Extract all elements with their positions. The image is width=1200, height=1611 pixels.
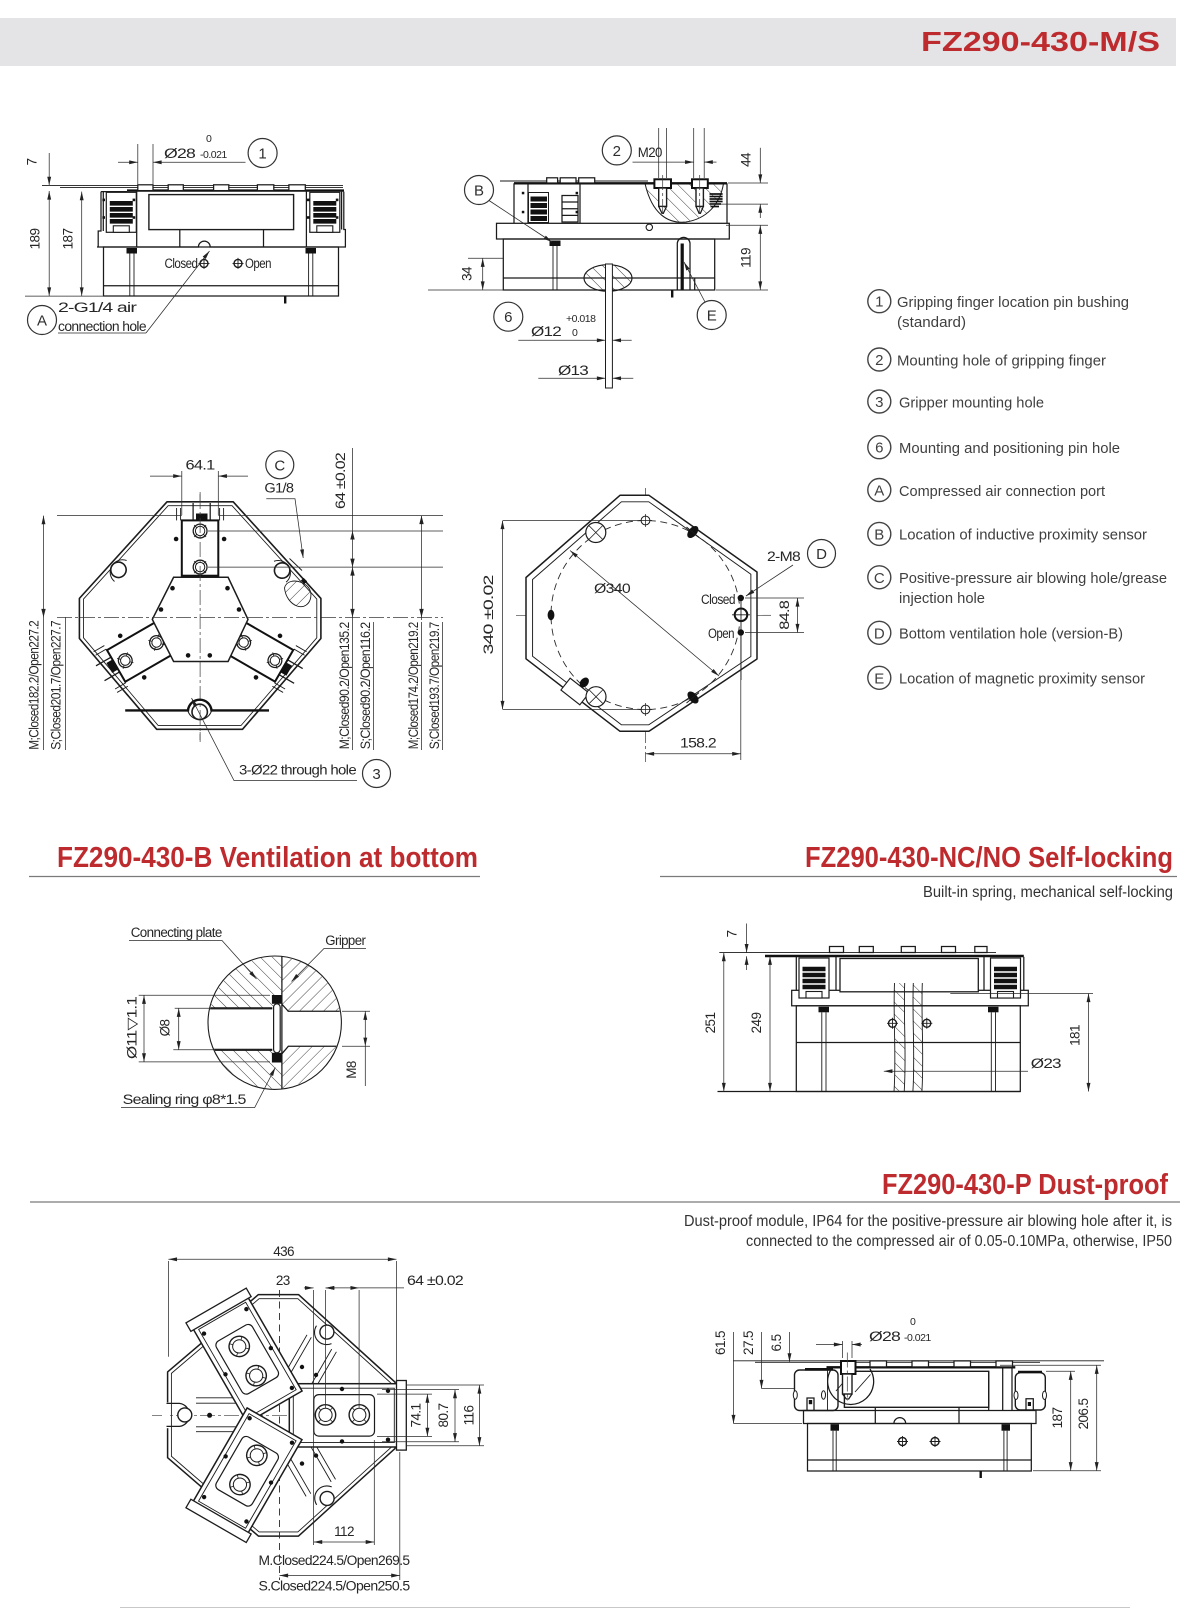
svg-text:23: 23 <box>276 1273 290 1288</box>
svg-text:FZ290-430-NC/NO Self-locking: FZ290-430-NC/NO Self-locking <box>805 842 1173 874</box>
svg-text:64 ±0.02: 64 ±0.02 <box>333 453 348 509</box>
svg-text:M.Closed224.5/Open269.5: M.Closed224.5/Open269.5 <box>259 1553 410 1568</box>
svg-text:206.5: 206.5 <box>1076 1399 1091 1430</box>
svg-text:251: 251 <box>703 1013 718 1034</box>
svg-text:Ø340: Ø340 <box>594 581 630 596</box>
svg-text:Closed: Closed <box>165 256 198 271</box>
svg-text:C: C <box>274 457 285 474</box>
svg-text:connection hole: connection hole <box>58 319 146 334</box>
svg-text:E: E <box>874 670 884 687</box>
svg-text:44: 44 <box>739 152 754 167</box>
svg-text:Sealing ring φ8*1.5: Sealing ring φ8*1.5 <box>123 1092 246 1107</box>
svg-text:G1/8: G1/8 <box>264 481 293 496</box>
svg-text:Ø28: Ø28 <box>164 146 195 161</box>
svg-text:connected to the compressed ai: connected to the compressed air of 0.05-… <box>746 1233 1172 1250</box>
svg-text:189: 189 <box>28 229 43 250</box>
svg-text:2: 2 <box>875 352 883 369</box>
svg-text:2-M8: 2-M8 <box>767 549 800 564</box>
svg-text:0: 0 <box>910 1316 916 1328</box>
svg-text:Open: Open <box>708 626 734 641</box>
svg-text:C: C <box>874 570 885 587</box>
svg-text:B: B <box>474 183 484 200</box>
svg-text:S;Closed201.7/Open227.7: S;Closed201.7/Open227.7 <box>49 621 64 750</box>
svg-text:Dust-proof module, IP64 for th: Dust-proof module, IP64 for the positive… <box>684 1213 1172 1230</box>
svg-text:3: 3 <box>875 394 883 411</box>
svg-text:M20: M20 <box>638 145 662 160</box>
svg-text:6.5: 6.5 <box>769 1334 784 1351</box>
svg-text:2: 2 <box>613 143 621 160</box>
svg-text:6: 6 <box>875 440 883 457</box>
svg-text:FZ290-430-P Dust-proof: FZ290-430-P Dust-proof <box>882 1169 1168 1201</box>
svg-text:84.8: 84.8 <box>777 601 792 630</box>
svg-text:Connecting plate: Connecting plate <box>131 925 222 940</box>
svg-text:Mounting and positioning pin h: Mounting and positioning pin hole <box>899 440 1120 457</box>
svg-text:27.5: 27.5 <box>741 1331 756 1355</box>
svg-text:187: 187 <box>1050 1408 1065 1429</box>
svg-text:2-G1/4 air: 2-G1/4 air <box>58 300 138 315</box>
svg-text:M;Closed174.2/Open219.2: M;Closed174.2/Open219.2 <box>406 622 421 749</box>
svg-text:112: 112 <box>334 1524 354 1539</box>
svg-text:+0.018: +0.018 <box>566 313 596 325</box>
svg-text:-0.021: -0.021 <box>200 149 227 161</box>
svg-text:S;Closed193.7/Open219.7: S;Closed193.7/Open219.7 <box>427 622 442 749</box>
svg-text:1: 1 <box>258 146 266 163</box>
svg-text:A: A <box>874 483 884 500</box>
svg-text:Mounting hole of gripping fing: Mounting hole of gripping finger <box>897 352 1106 369</box>
svg-text:D: D <box>874 625 885 642</box>
svg-text:FZ290-430-M/S: FZ290-430-M/S <box>921 26 1160 57</box>
svg-text:E: E <box>707 308 717 325</box>
svg-text:Ø23: Ø23 <box>1031 1056 1061 1071</box>
svg-text:74.1: 74.1 <box>408 1403 423 1427</box>
svg-text:Open: Open <box>245 256 271 271</box>
svg-text:Compressed air connection port: Compressed air connection port <box>899 483 1106 500</box>
svg-text:7: 7 <box>25 158 40 165</box>
svg-text:Gripper mounting hole: Gripper mounting hole <box>899 394 1044 411</box>
svg-text:Ø11▽1.1: Ø11▽1.1 <box>125 997 140 1059</box>
svg-text:Closed: Closed <box>701 592 735 607</box>
svg-text:181: 181 <box>1068 1025 1083 1046</box>
svg-text:-0.021: -0.021 <box>904 1332 931 1344</box>
svg-text:M;Closed90.2/Open135.2: M;Closed90.2/Open135.2 <box>337 622 352 749</box>
svg-text:249: 249 <box>749 1013 764 1034</box>
svg-text:M8: M8 <box>344 1061 359 1079</box>
svg-text:Gripping finger location pin b: Gripping finger location pin bushing <box>897 294 1129 311</box>
svg-text:340 ±0.02: 340 ±0.02 <box>481 575 496 654</box>
svg-text:B: B <box>874 526 884 543</box>
svg-text:S;Closed90.2/Open116.2: S;Closed90.2/Open116.2 <box>358 622 373 749</box>
svg-text:34: 34 <box>460 266 475 281</box>
svg-text:injection hole: injection hole <box>899 590 985 607</box>
svg-text:Ø8: Ø8 <box>158 1020 173 1037</box>
svg-text:7: 7 <box>725 930 740 937</box>
svg-text:6: 6 <box>504 309 512 326</box>
svg-text:436: 436 <box>273 1244 294 1259</box>
svg-text:80.7: 80.7 <box>436 1403 451 1427</box>
svg-text:119: 119 <box>739 248 754 268</box>
svg-text:187: 187 <box>61 229 76 250</box>
svg-text:Ø12: Ø12 <box>531 324 561 339</box>
svg-text:158.2: 158.2 <box>680 736 716 751</box>
svg-text:61.5: 61.5 <box>713 1331 728 1355</box>
svg-text:Location of inductive proximit: Location of inductive proximity sensor <box>899 527 1147 544</box>
svg-text:(standard): (standard) <box>897 314 966 331</box>
svg-text:1: 1 <box>875 294 883 311</box>
svg-text:Ø13: Ø13 <box>558 363 588 378</box>
svg-text:FZ290-430-B Ventilation at bot: FZ290-430-B Ventilation at bottom <box>57 842 478 874</box>
svg-text:Built-in spring, mechanical se: Built-in spring, mechanical self-locking <box>923 884 1173 901</box>
svg-text:64.1: 64.1 <box>186 458 215 473</box>
svg-text:M;Closed182.2/Open227.2: M;Closed182.2/Open227.2 <box>27 621 42 750</box>
svg-text:0: 0 <box>572 327 578 339</box>
svg-text:64 ±0.02: 64 ±0.02 <box>407 1273 463 1288</box>
svg-text:3-Ø22 through hole: 3-Ø22 through hole <box>239 763 356 778</box>
svg-text:S.Closed224.5/Open250.5: S.Closed224.5/Open250.5 <box>259 1579 410 1594</box>
svg-text:D: D <box>816 546 827 563</box>
svg-text:116: 116 <box>462 1406 477 1426</box>
svg-text:Gripper: Gripper <box>325 933 366 948</box>
svg-text:Ø28: Ø28 <box>869 1329 900 1344</box>
svg-text:Bottom ventilation hole (versi: Bottom ventilation hole (version-B) <box>899 626 1123 643</box>
svg-text:0: 0 <box>206 133 212 145</box>
svg-text:A: A <box>37 313 47 330</box>
svg-text:Positive-pressure air blowing: Positive-pressure air blowing hole/greas… <box>899 570 1167 587</box>
svg-text:3: 3 <box>372 766 380 783</box>
svg-text:Location of magnetic proximity: Location of magnetic proximity sensor <box>899 671 1145 688</box>
